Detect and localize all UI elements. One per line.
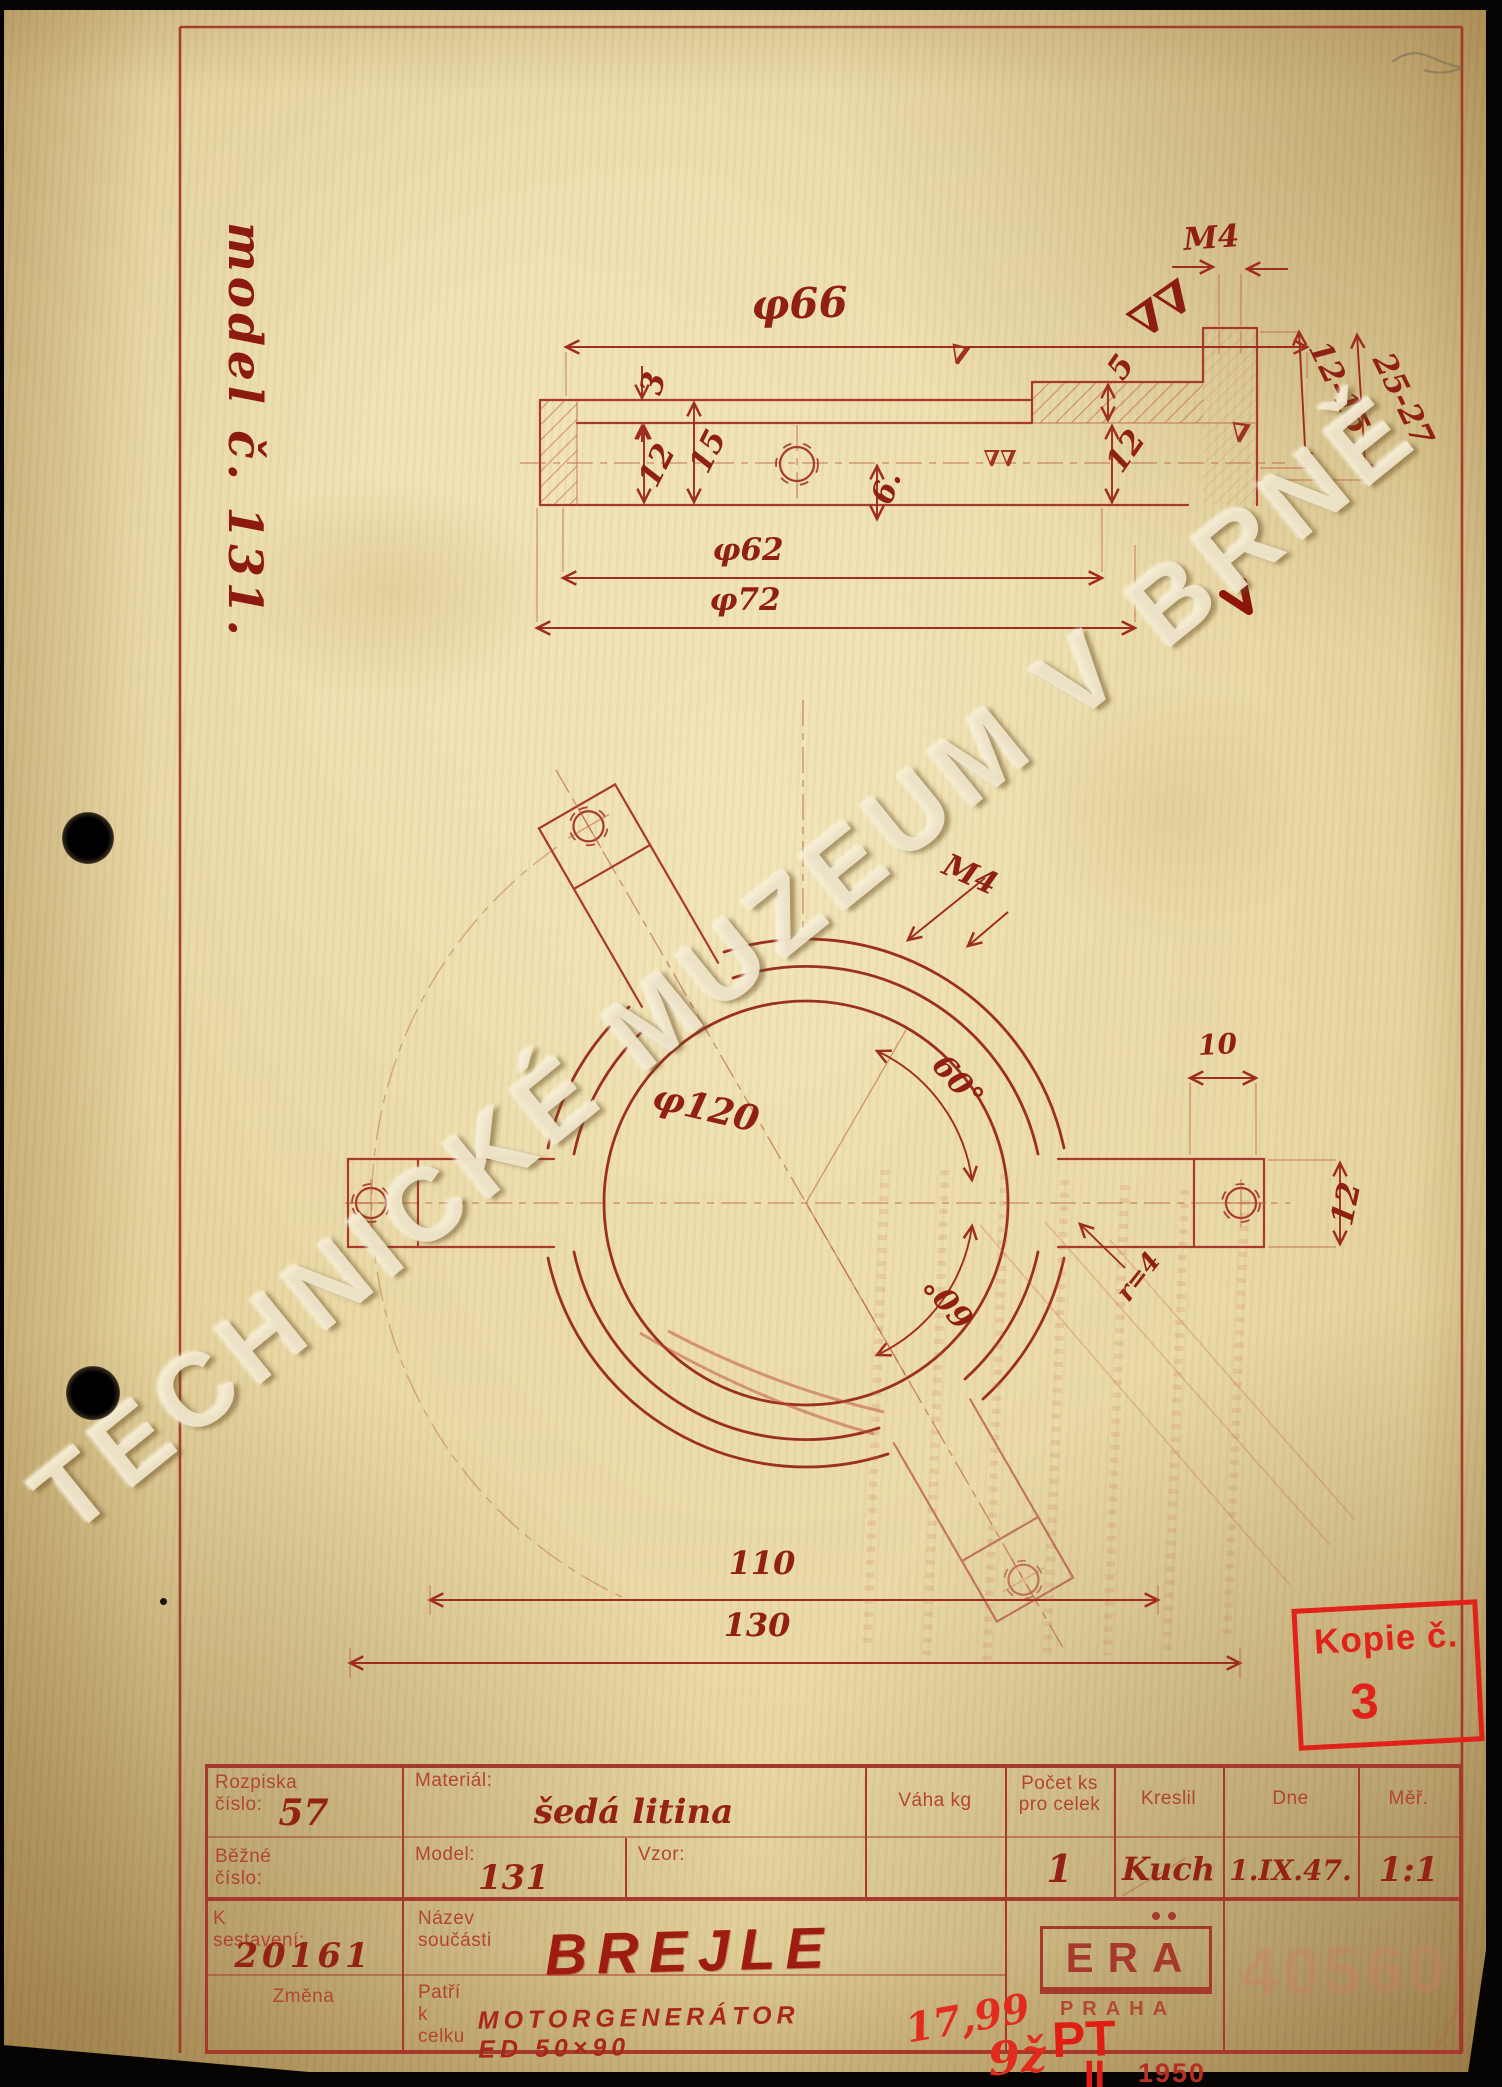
vaha-label: Váha kg — [865, 1790, 1005, 1812]
kopie-stamp-label: Kopie č. — [1297, 1614, 1475, 1663]
faint-register-number: 40560 — [1232, 1930, 1458, 2010]
dim-range-12-15: 12-15 — [1301, 335, 1377, 440]
pocet-label-2: pro celek — [1005, 1794, 1114, 1816]
dim-phi66: φ66 — [750, 277, 848, 329]
material-label: Materiál: — [415, 1770, 492, 1792]
dim-phi72: φ72 — [709, 582, 780, 618]
dim-m4-plan: M4 — [936, 847, 1003, 903]
dim-5: 5 — [1100, 348, 1142, 386]
drawing-frame — [180, 27, 1462, 2053]
finish-mark-icon: ∇∇ — [983, 446, 1017, 472]
dim-angle-lower: 60° — [917, 1267, 982, 1335]
dim-12-lug: 12 — [1324, 1179, 1368, 1229]
dim-3: 3 — [633, 368, 673, 398]
bezne-label: Běžné číslo: — [215, 1846, 271, 1890]
dim-130: 130 — [724, 1606, 791, 1644]
paper-speck — [160, 1598, 167, 1605]
scanned-drawing-page: φ66 φ62 φ72 3 15 12 6. 5 12 M4 12-15 25-… — [0, 0, 1502, 2087]
cell-slash — [1437, 2001, 1461, 2049]
era-logo-dot — [1168, 1912, 1176, 1920]
era-logo: ERA — [1040, 1926, 1212, 1994]
dim-phi62: φ62 — [712, 532, 783, 568]
check-mark — [1223, 582, 1249, 611]
dim-12-right: 12 — [1099, 423, 1153, 479]
year-stamp: 1950 — [1138, 2058, 1206, 2087]
model-value: 131 — [402, 1858, 625, 1898]
dim-angle-upper: 60° — [924, 1047, 990, 1115]
finish-mark-icon: ∇∇ — [1120, 270, 1204, 350]
kreslil-label: Kreslil — [1114, 1788, 1223, 1810]
pocet-value: 1 — [1005, 1846, 1114, 1891]
margin-note: model č. 131. — [217, 222, 272, 641]
mer-value: 1:1 — [1358, 1850, 1459, 1890]
punch-hole — [62, 812, 114, 864]
dim-6: 6. — [864, 466, 909, 509]
nazev-label: Název součásti — [418, 1908, 492, 1952]
ghost-print — [640, 1170, 1355, 1660]
dne-label: Dne — [1223, 1788, 1358, 1810]
dim-12: 12 — [631, 438, 683, 493]
kopie-stamp: Kopie č. 3 — [1291, 1599, 1484, 1751]
dim-110: 110 — [729, 1544, 796, 1582]
mer-label: Měř. — [1358, 1788, 1459, 1810]
finish-mark-icon: ∇ — [946, 339, 973, 373]
zmena-label: Změna — [205, 1986, 402, 2008]
dim-m4-section: M4 — [1181, 218, 1240, 258]
patri-label: Patří k celku — [418, 1982, 465, 2048]
assembly-stamp: MOTORGENERÁTOR ED 50×90 — [478, 2001, 801, 2065]
era-logo-dot — [1152, 1912, 1160, 1920]
pencil-scribble — [1392, 53, 1462, 72]
pocet-label-1: Počet ks — [1005, 1773, 1114, 1795]
kreslil-value: Kuch — [1114, 1850, 1223, 1888]
vzor-label: Vzor: — [638, 1844, 685, 1866]
plan-view: 60° 60° φ120 M4 10 12 r=4 110 130 — [345, 700, 1368, 1678]
rozpiska-value: 57 — [205, 1792, 402, 1834]
dim-15: 15 — [682, 424, 734, 479]
red-stamp-roman: II — [1084, 2054, 1105, 2087]
material-value: šedá litina — [402, 1792, 865, 1832]
dim-phi120: φ120 — [648, 1076, 762, 1141]
dim-range-25-27: 25-27 — [1365, 346, 1441, 452]
kopie-stamp-number: 3 — [1349, 1672, 1380, 1731]
red-note-code: 9ž — [986, 2028, 1049, 2087]
dne-value: 1.IX.47. — [1223, 1854, 1358, 1887]
k-sestaveni-value: 20161 — [205, 1936, 402, 1976]
era-logo-text: ERA — [1066, 1934, 1197, 1982]
punch-hole — [66, 1366, 120, 1420]
section-view: φ66 φ62 φ72 3 15 12 6. 5 12 M4 12-15 25-… — [520, 218, 1441, 628]
part-name-stamp: BREJLE — [544, 1914, 834, 1989]
dim-10: 10 — [1197, 1027, 1238, 1062]
